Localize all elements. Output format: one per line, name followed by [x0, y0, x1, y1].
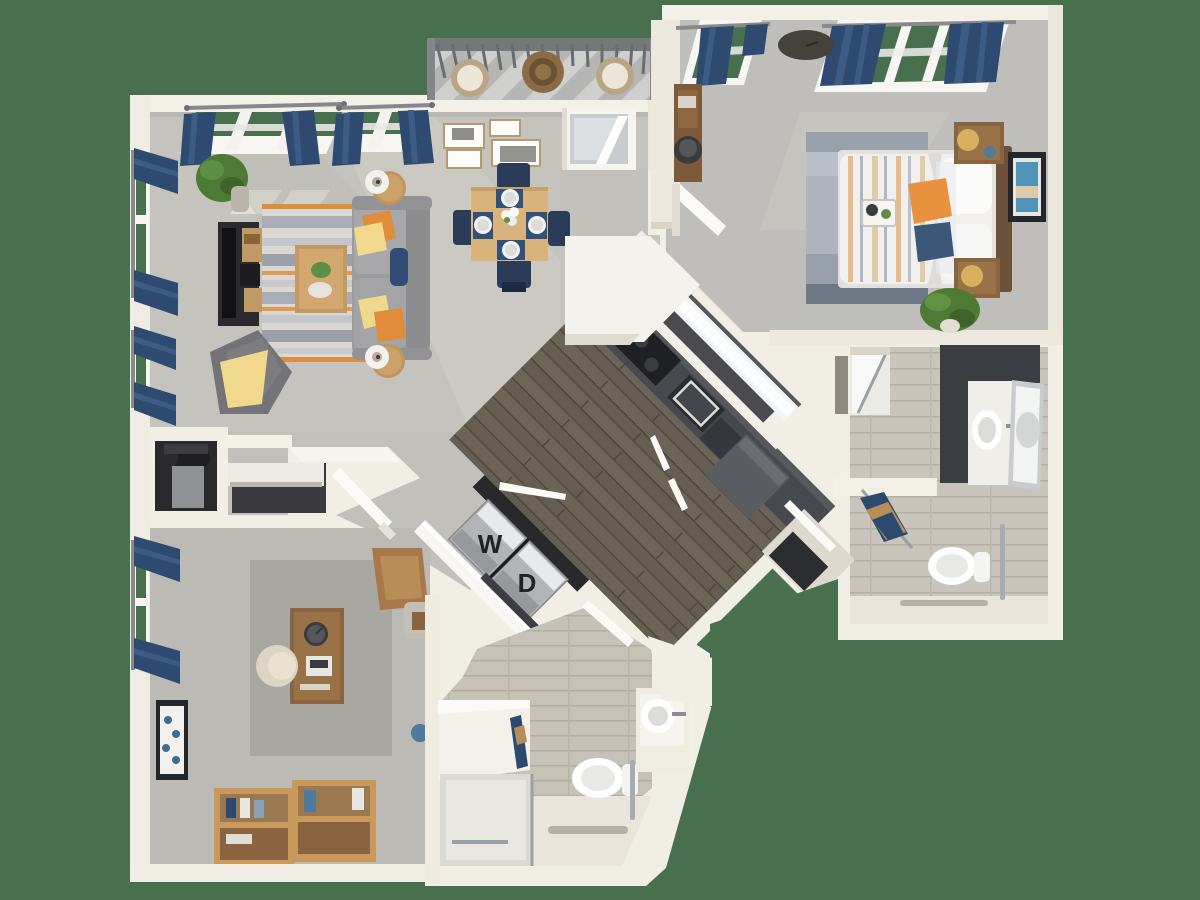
svg-text:D: D	[518, 568, 537, 598]
svg-text:W: W	[478, 529, 503, 559]
